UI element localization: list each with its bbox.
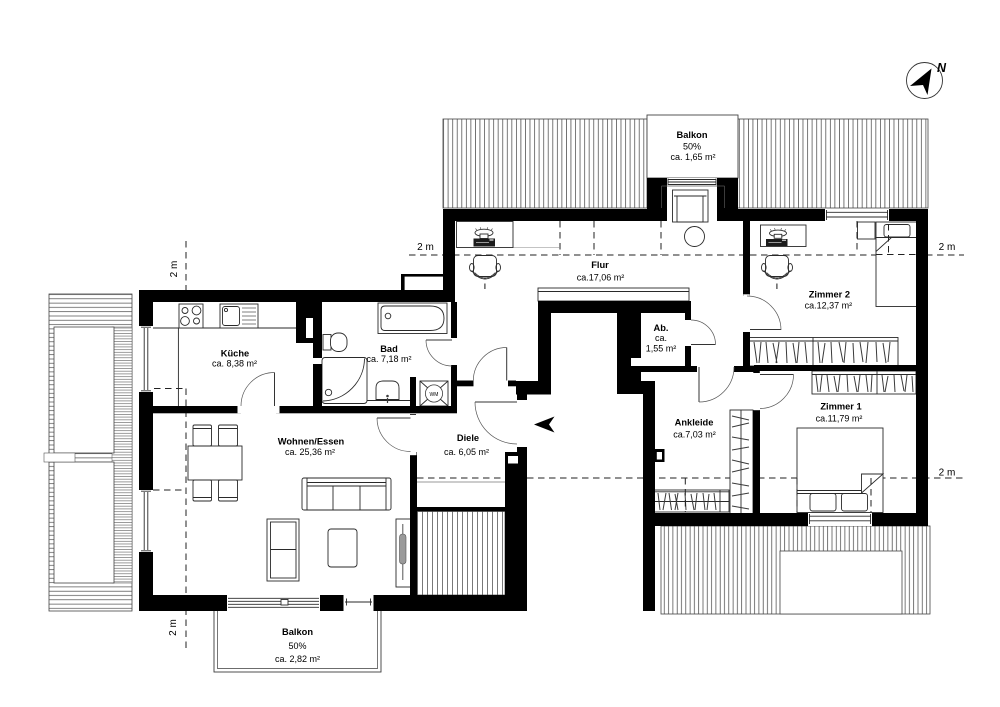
- svg-text:WM: WM: [430, 392, 439, 398]
- svg-text:50%: 50%: [683, 142, 701, 152]
- svg-text:Ankleide: Ankleide: [675, 418, 714, 428]
- svg-text:2 m: 2 m: [417, 242, 434, 253]
- svg-text:Zimmer 2: Zimmer 2: [809, 290, 850, 300]
- svg-text:ca.17,06 m²: ca.17,06 m²: [577, 273, 625, 283]
- svg-text:Bad: Bad: [380, 344, 398, 354]
- svg-text:50%: 50%: [288, 641, 306, 651]
- svg-text:Ab.: Ab.: [654, 323, 669, 333]
- svg-text:ca. 8,38 m²: ca. 8,38 m²: [212, 359, 257, 369]
- svg-text:Diele: Diele: [457, 433, 479, 443]
- svg-text:2 m: 2 m: [939, 242, 956, 253]
- svg-text:1,55 m²: 1,55 m²: [646, 344, 677, 354]
- svg-text:ca. 25,36 m²: ca. 25,36 m²: [285, 447, 335, 457]
- svg-text:Flur: Flur: [591, 260, 609, 270]
- svg-text:2 m: 2 m: [939, 468, 956, 479]
- svg-text:ca. 6,05 m²: ca. 6,05 m²: [444, 447, 489, 457]
- svg-text:ca. 7,18 m²: ca. 7,18 m²: [366, 354, 411, 364]
- svg-text:ca.11,79 m²: ca.11,79 m²: [816, 414, 863, 424]
- svg-text:Balkon: Balkon: [282, 627, 313, 637]
- svg-text:ca. 1,65 m²: ca. 1,65 m²: [670, 152, 715, 162]
- svg-text:Wohnen/Essen: Wohnen/Essen: [278, 437, 345, 447]
- svg-text:ca. 2,82 m²: ca. 2,82 m²: [275, 654, 320, 664]
- svg-text:N: N: [937, 61, 947, 75]
- svg-text:Zimmer 1: Zimmer 1: [820, 402, 861, 412]
- svg-text:ca.7,03 m²: ca.7,03 m²: [673, 430, 716, 440]
- svg-text:Küche: Küche: [221, 349, 249, 359]
- svg-text:2 m: 2 m: [169, 261, 180, 278]
- svg-text:ca.: ca.: [655, 333, 667, 343]
- svg-text:2 m: 2 m: [168, 619, 179, 636]
- svg-text:ca.12,37 m²: ca.12,37 m²: [805, 301, 853, 311]
- svg-text:Balkon: Balkon: [677, 130, 708, 140]
